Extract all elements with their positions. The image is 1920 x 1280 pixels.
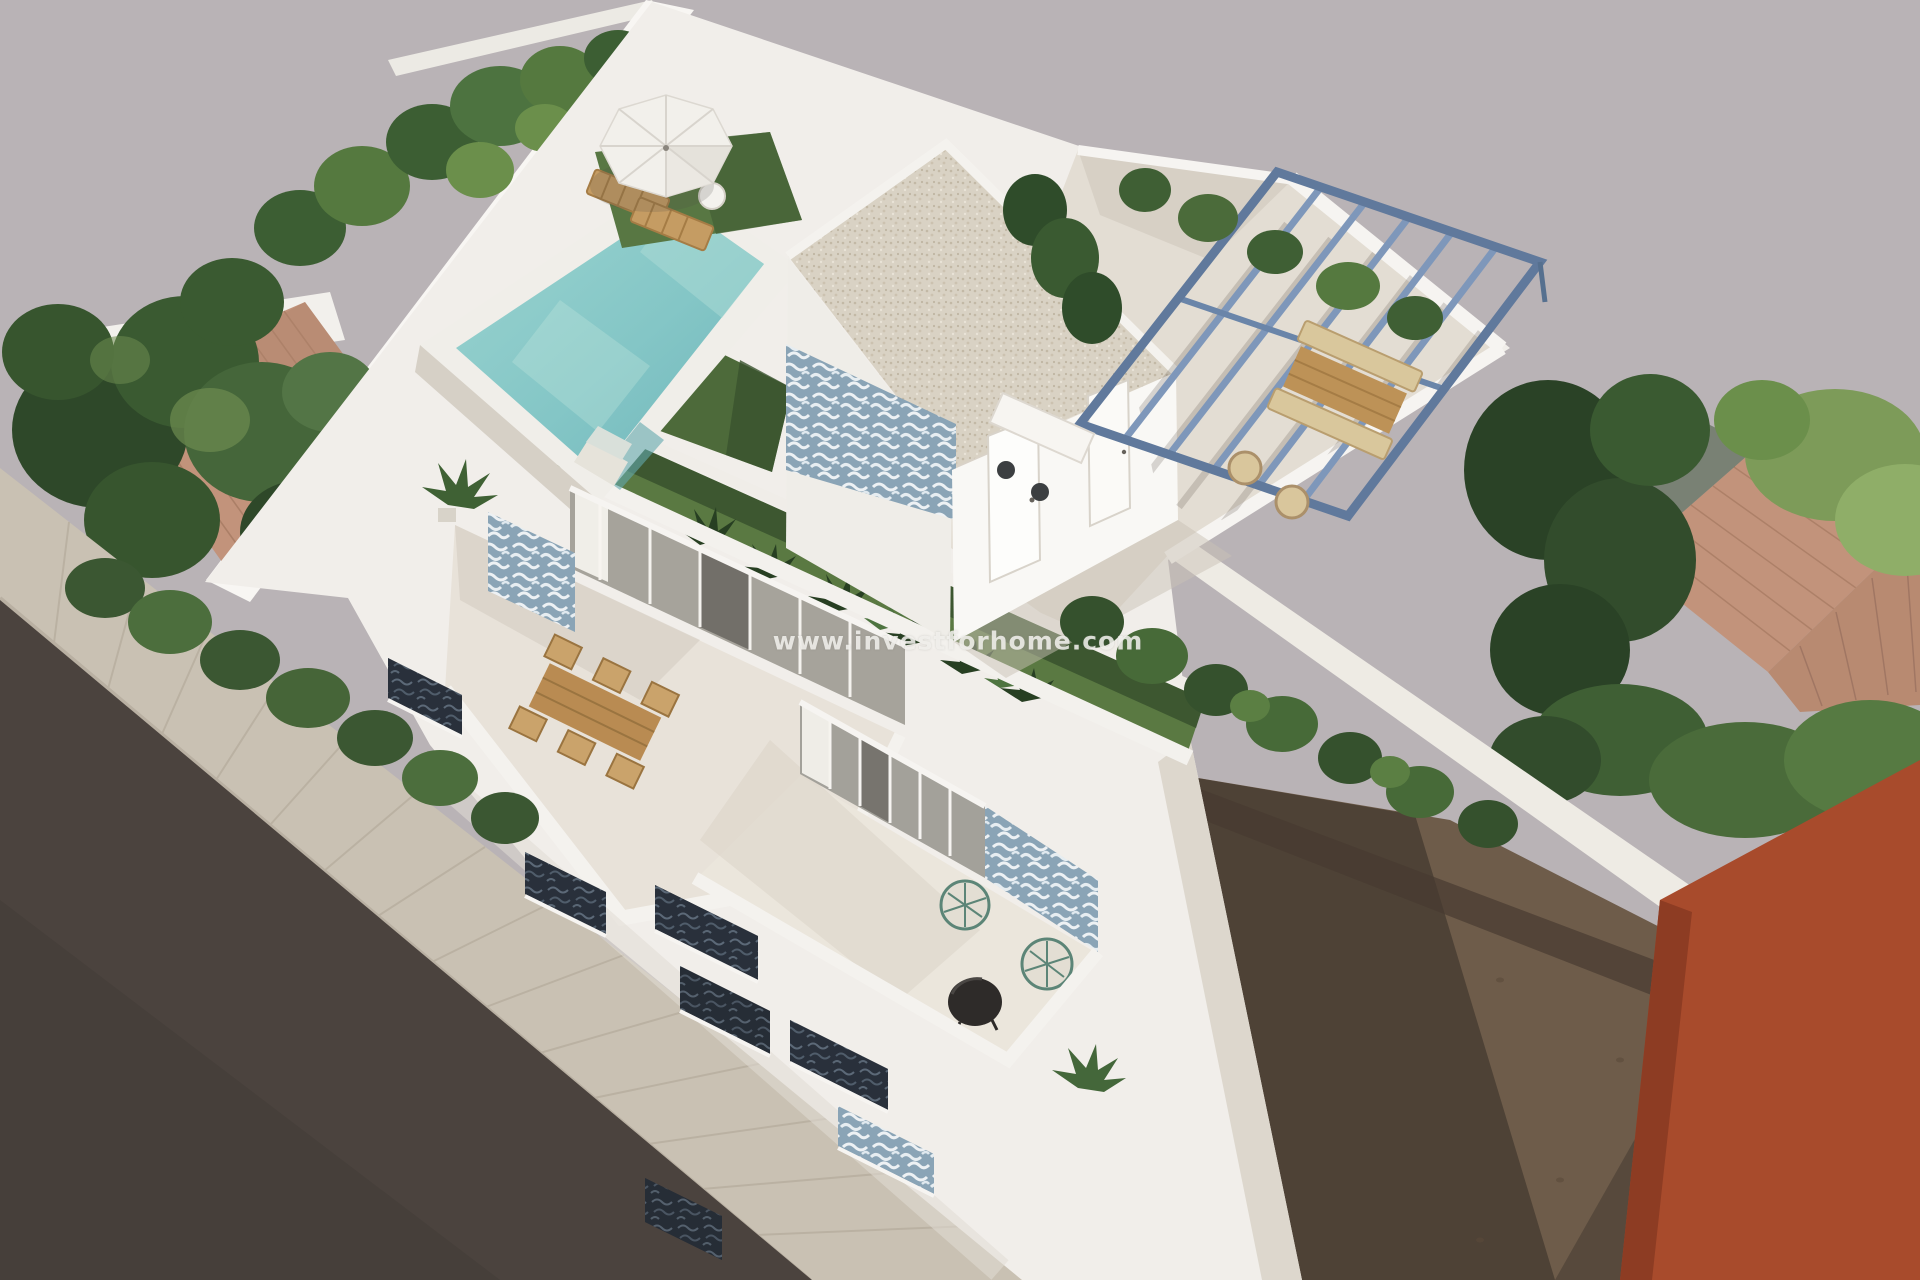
scene-svg [0,0,1920,1280]
render-canvas: www.investforhome.com [0,0,1920,1280]
